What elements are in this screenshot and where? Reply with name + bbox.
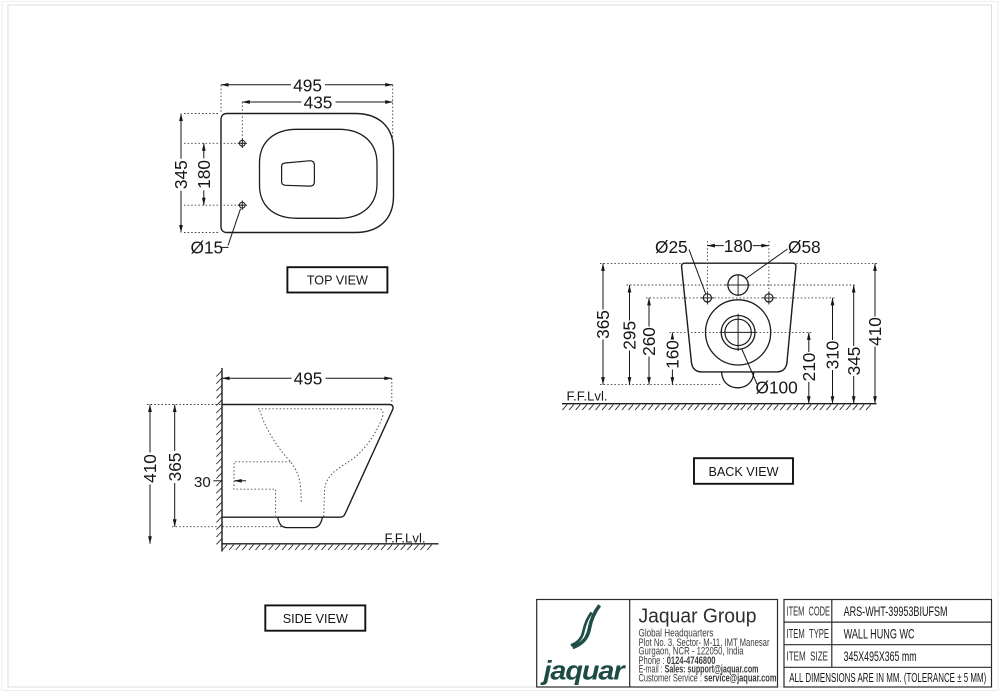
svg-text:Ø58: Ø58 <box>788 237 821 257</box>
svg-text:Ø15: Ø15 <box>191 238 224 258</box>
svg-text:365: 365 <box>165 453 185 482</box>
svg-text:ALL DIMENSIONS ARE IN MM. (TOL: ALL DIMENSIONS ARE IN MM. (TOLERANCE ± 5… <box>789 671 986 685</box>
svg-text:410: 410 <box>865 317 885 346</box>
svg-text:295: 295 <box>620 321 640 350</box>
svg-text:180: 180 <box>194 160 214 189</box>
svg-text:30: 30 <box>194 474 211 491</box>
svg-text:410: 410 <box>140 454 160 483</box>
svg-text:435: 435 <box>304 93 333 113</box>
svg-text:345: 345 <box>171 160 191 189</box>
svg-text:jaquar: jaquar <box>540 656 626 686</box>
svg-text:495: 495 <box>294 369 323 389</box>
svg-text:210: 210 <box>799 353 819 382</box>
svg-text:TOP VIEW: TOP VIEW <box>307 274 368 288</box>
svg-text:ITEM TYPE: ITEM TYPE <box>787 627 830 641</box>
svg-text:F.F.Lvl.: F.F.Lvl. <box>385 530 426 545</box>
svg-text:310: 310 <box>823 341 843 370</box>
svg-text:345: 345 <box>844 347 864 376</box>
svg-text:180: 180 <box>724 236 753 256</box>
svg-text:Jaquar Group: Jaquar Group <box>639 605 757 627</box>
svg-text:365: 365 <box>593 310 613 339</box>
svg-text:ARS-WHT-39953BIUFSM: ARS-WHT-39953BIUFSM <box>844 603 948 619</box>
svg-text:Ø100: Ø100 <box>756 377 798 397</box>
svg-text:ITEM CODE: ITEM CODE <box>787 604 831 618</box>
svg-text:345X495X365 mm: 345X495X365 mm <box>844 648 917 664</box>
svg-text:WALL HUNG WC: WALL HUNG WC <box>844 626 915 642</box>
svg-text:Customer Service : service@jaq: Customer Service : service@jaquar.com <box>639 672 777 684</box>
svg-text:260: 260 <box>639 327 659 356</box>
svg-text:ITEM SIZE: ITEM SIZE <box>787 650 829 664</box>
svg-text:F.F.Lvl.: F.F.Lvl. <box>567 388 608 403</box>
svg-text:BACK VIEW: BACK VIEW <box>709 465 779 479</box>
svg-text:160: 160 <box>663 340 683 369</box>
svg-text:SIDE VIEW: SIDE VIEW <box>283 612 348 626</box>
svg-text:Ø25: Ø25 <box>655 237 688 257</box>
